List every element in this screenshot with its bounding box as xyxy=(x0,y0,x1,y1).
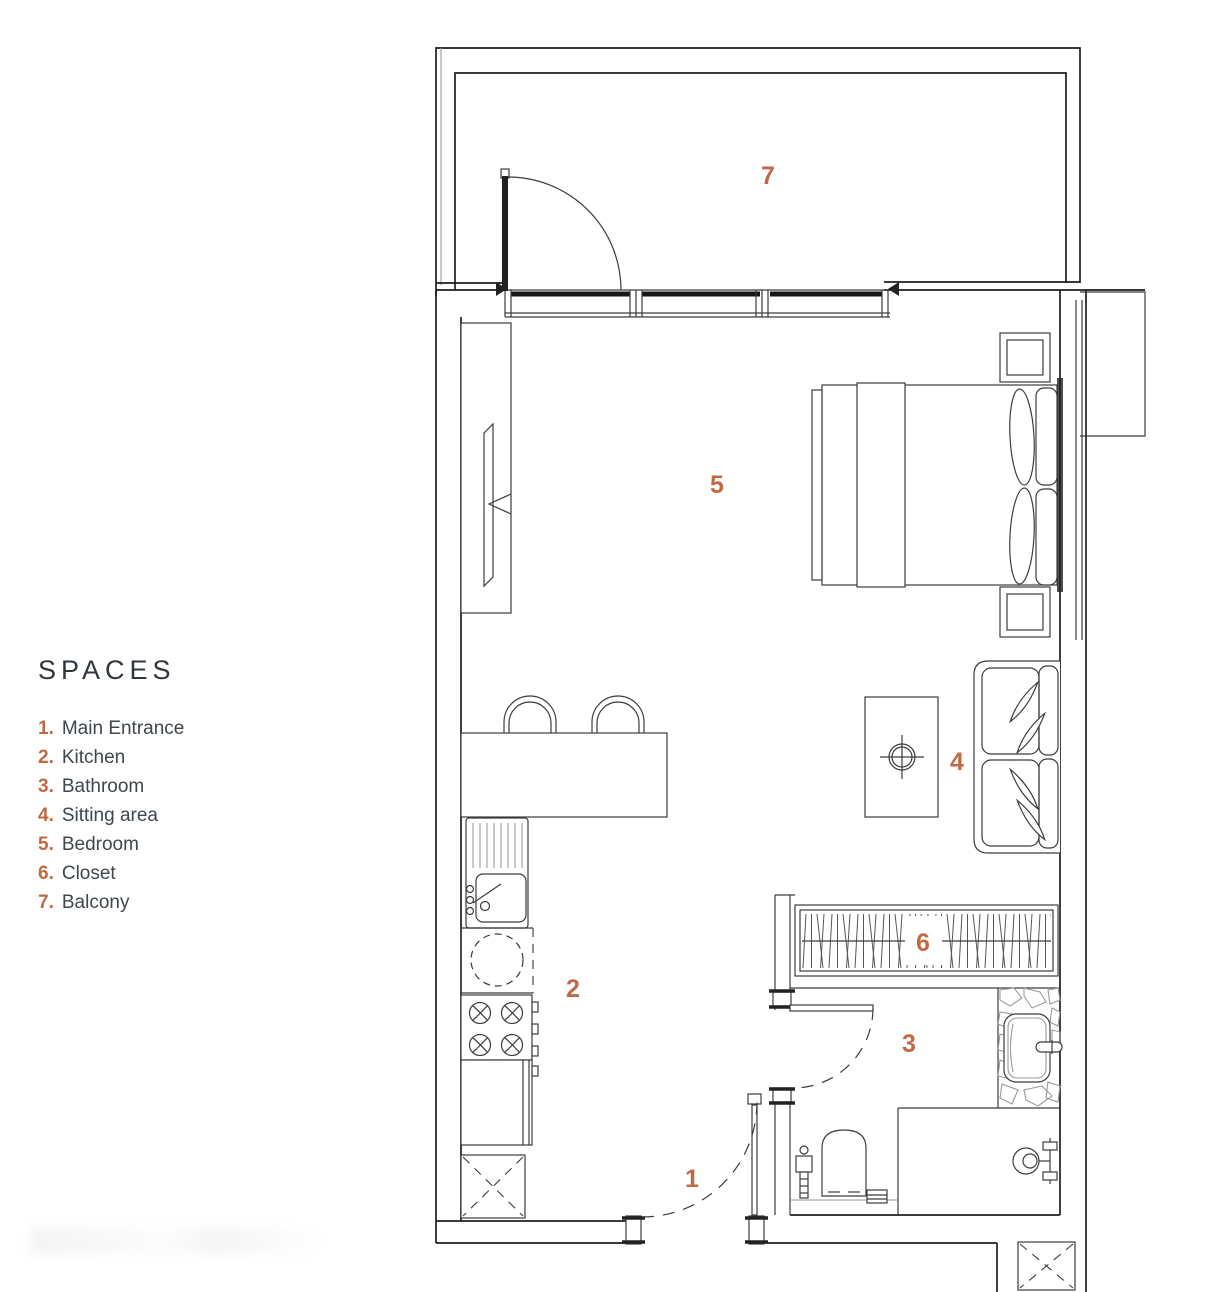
balcony: 7 xyxy=(501,162,775,291)
coffee-table xyxy=(865,697,938,817)
tv-console xyxy=(461,323,511,613)
kitchen: 2 xyxy=(461,696,667,1218)
pillow-back xyxy=(1036,388,1057,485)
bar-chair xyxy=(592,696,644,733)
stove xyxy=(461,995,538,1060)
room-label-main-entrance: 1 xyxy=(685,1165,699,1193)
under-counter-appliance xyxy=(461,928,533,993)
balcony-door-leaf xyxy=(502,176,508,291)
balcony-window-wall xyxy=(496,282,899,317)
exterior-shaft xyxy=(1018,1242,1075,1290)
kitchen-sink xyxy=(466,818,528,928)
balcony-door-swing xyxy=(508,177,621,290)
bathroom: 3 xyxy=(769,988,1062,1203)
sitting-area: 4 xyxy=(865,661,1060,853)
entrance-door-cap xyxy=(748,1094,761,1104)
entrance-door-leaf xyxy=(752,1105,757,1215)
double-bed xyxy=(812,378,1063,592)
room-label-sitting-area: 4 xyxy=(950,748,964,776)
room-label-kitchen: 2 xyxy=(566,975,580,1003)
floor-plan-page: SPACES 1.Main Entrance 2.Kitchen 3.Bathr… xyxy=(0,0,1219,1292)
water-valve xyxy=(796,1146,812,1198)
kitchen-shaft xyxy=(461,1155,525,1218)
room-label-bathroom: 3 xyxy=(902,1030,916,1058)
paper-holder xyxy=(867,1190,887,1203)
floor-plan: 7 5 xyxy=(0,0,1219,1292)
door-post xyxy=(745,1216,768,1244)
entrance-door-swing xyxy=(642,1102,757,1217)
bathroom-door-leaf xyxy=(790,1005,873,1011)
base-cabinet xyxy=(461,1060,538,1145)
door-post xyxy=(622,1216,645,1244)
vanity xyxy=(998,988,1062,1108)
main-entrance: 1 xyxy=(622,1094,768,1244)
toilet xyxy=(796,1130,887,1203)
basin-faucet xyxy=(1036,1042,1062,1052)
wall-end-marker xyxy=(888,282,899,296)
shower-set xyxy=(1013,1138,1057,1184)
room-label-balcony: 7 xyxy=(761,162,775,190)
bar-counter xyxy=(461,733,667,817)
sofa xyxy=(974,661,1060,853)
bar-chair xyxy=(504,696,556,733)
bathroom-door xyxy=(769,991,873,1103)
pillow-back xyxy=(1036,489,1057,585)
closet: 6 xyxy=(795,905,1058,976)
bathroom-door-swing xyxy=(793,1008,873,1088)
room-label-closet: 6 xyxy=(916,929,930,957)
shower-head xyxy=(1013,1148,1039,1174)
room-label-bedroom: 5 xyxy=(710,471,724,499)
nightstand xyxy=(1000,333,1050,382)
nightstand xyxy=(1000,587,1050,637)
bedroom: 5 xyxy=(710,300,1082,640)
headboard xyxy=(1057,378,1063,592)
